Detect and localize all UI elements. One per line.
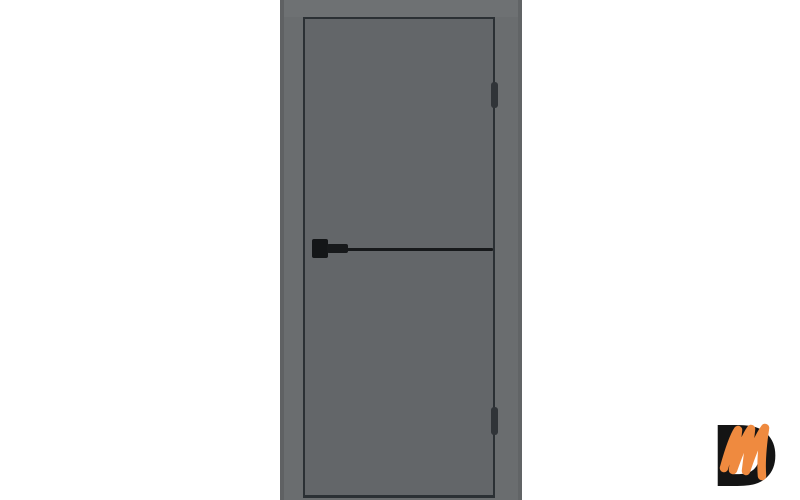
door-hinge-bottom <box>491 407 498 435</box>
logo-svg: D <box>708 410 794 496</box>
door-handle-lever <box>327 244 348 253</box>
door-molding-line <box>328 248 493 251</box>
product-photo: D <box>0 0 800 500</box>
brand-watermark-logo: D <box>708 410 794 496</box>
frame-head-jamb <box>284 0 518 17</box>
frame-left-edge-shadow <box>280 0 284 500</box>
door-handle-rosette <box>312 239 328 258</box>
door-leaf <box>303 17 495 498</box>
door-hinge-top <box>491 82 498 108</box>
frame-right-edge-shadow <box>518 0 522 500</box>
